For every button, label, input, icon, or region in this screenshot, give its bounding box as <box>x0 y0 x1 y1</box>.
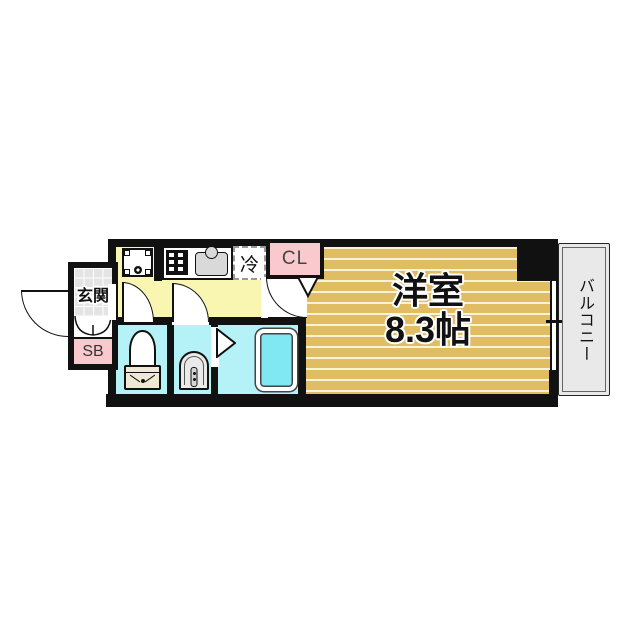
balcony: バルコニー <box>558 243 610 396</box>
main-room-label: 洋室 8.3帖 <box>330 271 526 349</box>
burner <box>169 253 174 257</box>
tank-mark <box>130 375 140 383</box>
washbasin-icon <box>179 351 209 390</box>
pan-corner <box>124 269 130 275</box>
tank-mark <box>145 375 155 383</box>
wall-bath-mainroom-divider <box>298 317 306 394</box>
tank-button <box>141 379 145 383</box>
kitchen-counter <box>162 246 233 280</box>
refrigerator-label: 冷 <box>240 250 259 277</box>
burner <box>178 267 183 271</box>
stove-icon <box>166 250 188 275</box>
wall-bottom <box>106 394 558 407</box>
closet: CL <box>266 239 324 279</box>
tank-lid-line <box>126 372 159 373</box>
shoe-box: SB <box>74 337 112 364</box>
main-room-name: 洋室 <box>330 271 526 310</box>
washbasin-faucet-icon <box>191 367 198 387</box>
wall-right-below-window <box>549 370 558 396</box>
entrance-label: 玄関 <box>74 282 112 306</box>
entrance-step <box>74 316 112 337</box>
pan-drain-icon <box>134 266 142 274</box>
refrigerator-space: 冷 <box>233 246 266 280</box>
closet-door-icon <box>297 276 319 298</box>
washing-machine-pan-icon <box>122 248 153 277</box>
balcony-label: バルコニー <box>572 277 596 362</box>
entrance-step-icon <box>74 316 112 337</box>
main-room-size: 8.3帖 <box>330 310 526 349</box>
faucet-dot <box>193 378 196 381</box>
pan-corner <box>124 250 130 256</box>
balcony-window-mullion <box>546 320 562 323</box>
shoe-box-label: SB <box>82 343 103 361</box>
burner <box>169 267 174 271</box>
folding-door-icon <box>216 328 236 358</box>
bathtub-icon <box>256 329 297 391</box>
burner <box>178 253 183 257</box>
wall-toilet-wash-divider <box>167 323 174 394</box>
faucet-dot <box>193 372 196 375</box>
pan-corner <box>145 269 151 275</box>
balcony-window <box>550 281 558 370</box>
closet-label: CL <box>282 248 308 270</box>
toilet-tank-icon <box>124 365 161 390</box>
burner <box>169 260 174 264</box>
pan-corner <box>145 250 151 256</box>
wall-counter-stub <box>154 246 162 281</box>
doorway-entrance-kitchen <box>108 284 116 320</box>
burner <box>178 260 183 264</box>
floorplan-canvas: バルコニー SB 玄関 <box>0 0 640 640</box>
faucet-icon <box>205 246 218 259</box>
front-door-swing-icon <box>21 290 68 337</box>
